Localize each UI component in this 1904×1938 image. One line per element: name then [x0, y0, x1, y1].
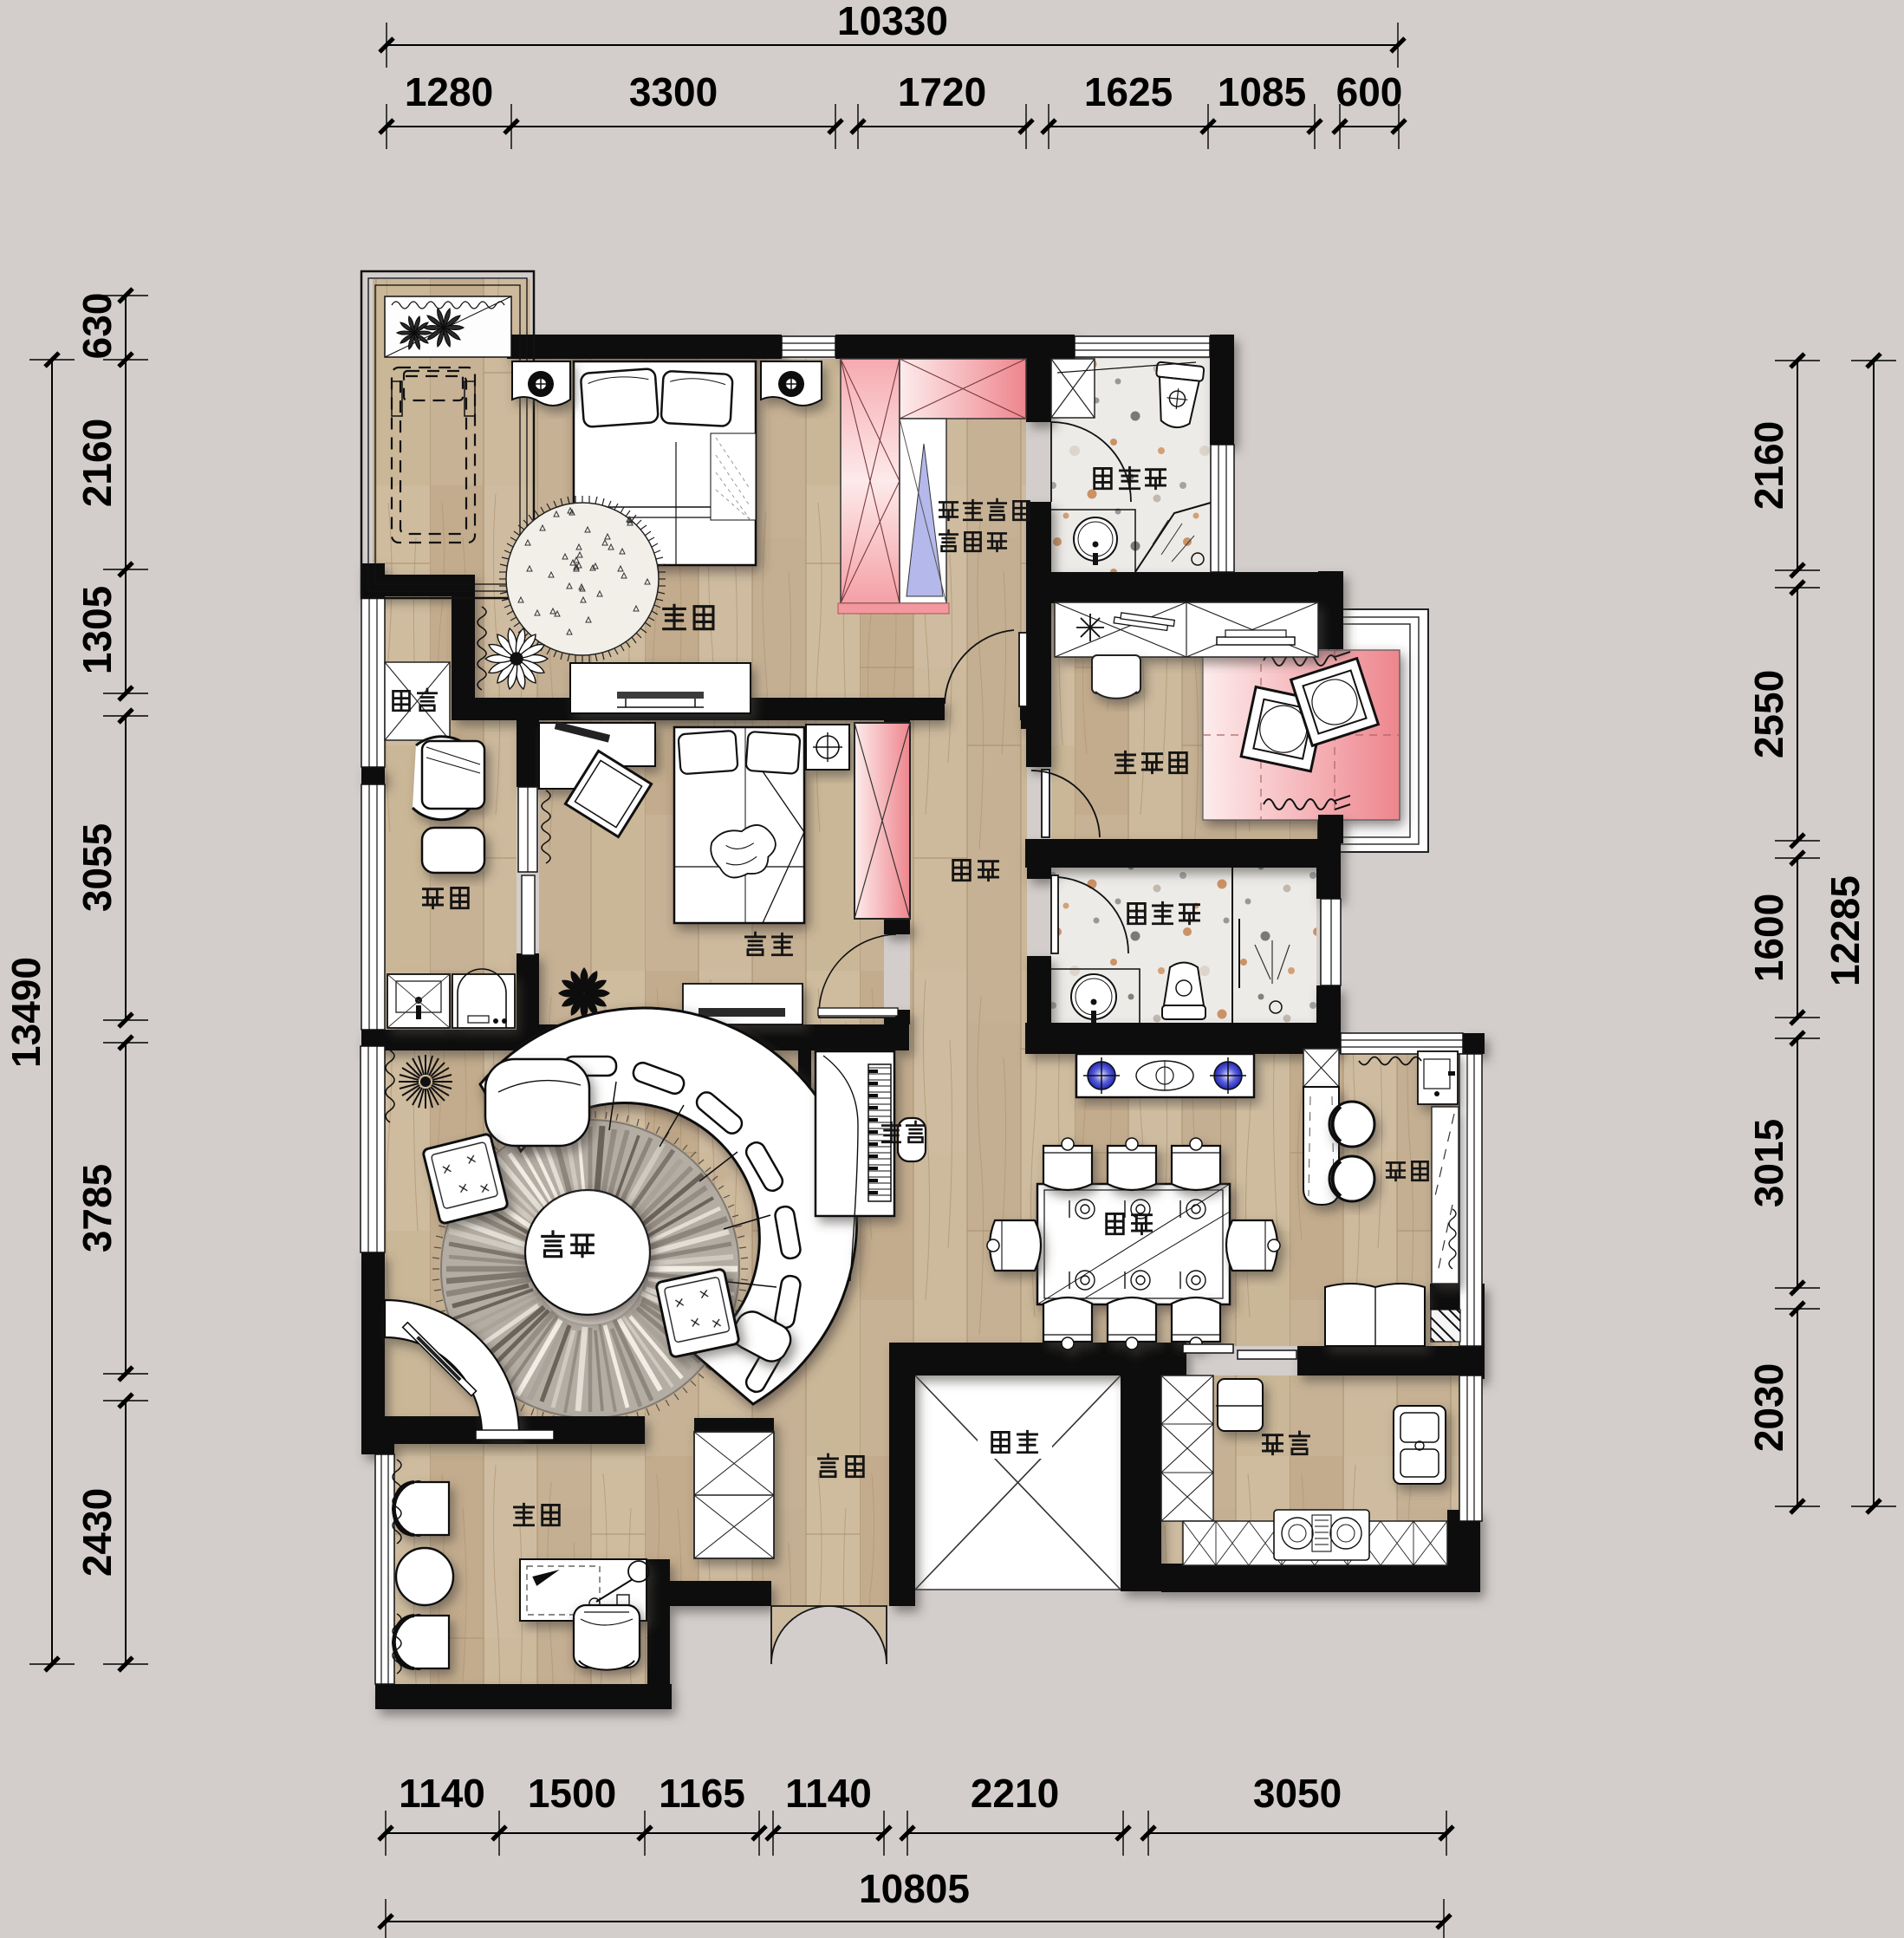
svg-text:1600: 1600 — [1746, 894, 1791, 982]
svg-text:630: 630 — [75, 293, 120, 360]
svg-text:1140: 1140 — [399, 1771, 485, 1816]
svg-text:1140: 1140 — [785, 1771, 872, 1816]
svg-text:2030: 2030 — [1746, 1363, 1791, 1452]
svg-text:12285: 12285 — [1823, 875, 1868, 986]
svg-text:1720: 1720 — [898, 69, 986, 114]
svg-text:1280: 1280 — [405, 69, 493, 114]
svg-text:1305: 1305 — [75, 586, 120, 674]
svg-text:600: 600 — [1336, 69, 1403, 114]
svg-text:13490: 13490 — [3, 957, 49, 1068]
svg-text:3785: 3785 — [75, 1164, 120, 1252]
svg-text:3050: 3050 — [1253, 1771, 1342, 1816]
svg-text:10805: 10805 — [859, 1866, 970, 1911]
svg-text:2550: 2550 — [1746, 670, 1791, 758]
svg-text:3055: 3055 — [75, 823, 120, 912]
svg-text:2210: 2210 — [971, 1771, 1059, 1816]
svg-text:1085: 1085 — [1218, 69, 1306, 114]
svg-text:2160: 2160 — [75, 419, 120, 507]
svg-text:10330: 10330 — [837, 0, 948, 43]
svg-text:3300: 3300 — [629, 69, 718, 114]
svg-text:3015: 3015 — [1746, 1119, 1791, 1207]
svg-text:1165: 1165 — [659, 1771, 745, 1816]
svg-text:2430: 2430 — [75, 1488, 120, 1577]
svg-text:2160: 2160 — [1746, 421, 1791, 510]
svg-text:1625: 1625 — [1084, 69, 1173, 114]
svg-text:1500: 1500 — [528, 1771, 616, 1816]
